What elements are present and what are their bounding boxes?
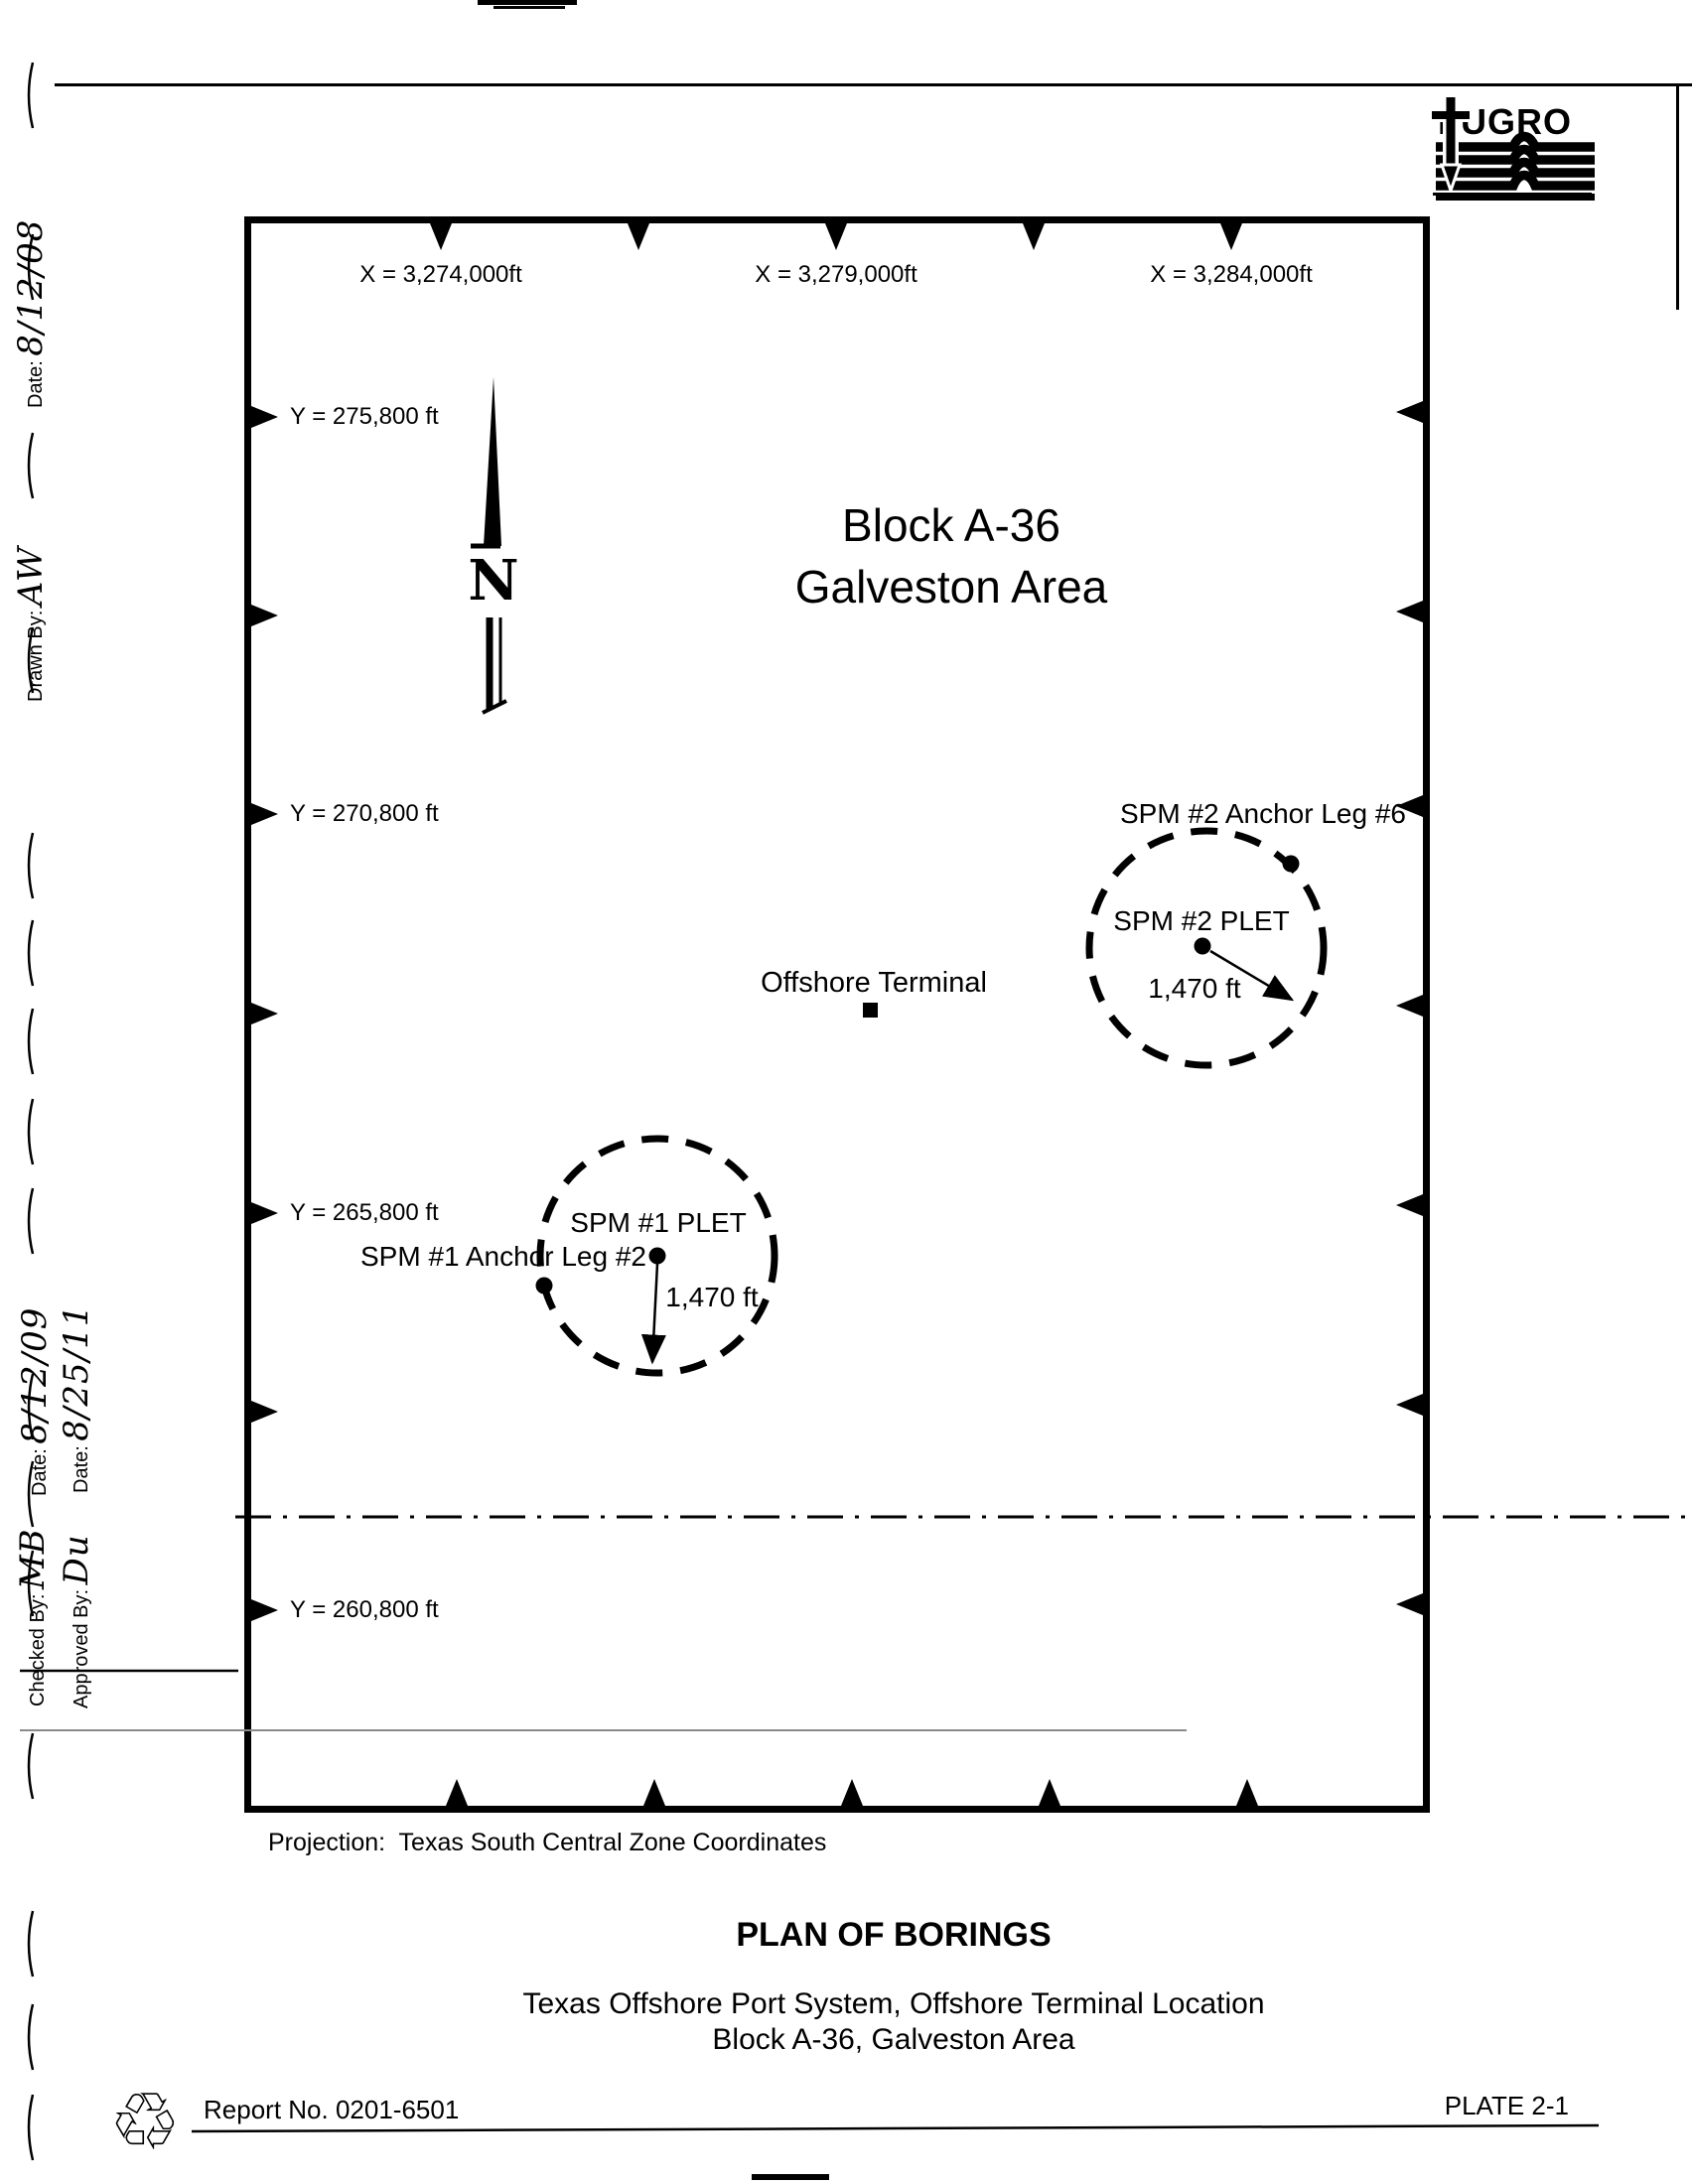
footer-rule bbox=[192, 2125, 1599, 2131]
projection-note: Projection: Texas South Central Zone Coo… bbox=[268, 1829, 826, 1857]
binding-mark bbox=[29, 1551, 33, 1616]
plate-subtitle-line2: Block A-36, Galveston Area bbox=[712, 2023, 1074, 2057]
binding-mark bbox=[29, 1374, 33, 1439]
binding-mark bbox=[29, 2095, 33, 2160]
spm2-plet-dot bbox=[1195, 938, 1211, 955]
bottom-binding-mark bbox=[752, 2174, 829, 2180]
binding-mark bbox=[29, 63, 33, 128]
plan-drawing-overlay bbox=[0, 0, 1692, 2184]
binding-mark bbox=[29, 433, 33, 498]
binding-mark bbox=[29, 2004, 33, 2070]
plate-number: PLATE 2-1 bbox=[1445, 2091, 1569, 2121]
binding-mark bbox=[29, 234, 33, 300]
spm1-anchor-dot bbox=[536, 1278, 553, 1295]
binding-mark bbox=[29, 1461, 33, 1527]
plate-subtitle-line1: Texas Offshore Port System, Offshore Ter… bbox=[522, 1987, 1264, 2021]
binding-mark bbox=[29, 833, 33, 898]
spm1-radius-arrow bbox=[652, 1264, 657, 1362]
recycle-icon: ♲ bbox=[109, 2083, 181, 2162]
binding-mark bbox=[29, 920, 33, 986]
binding-mark bbox=[29, 1911, 33, 1977]
spm2-radius-arrow bbox=[1210, 951, 1292, 1000]
binding-mark bbox=[29, 1188, 33, 1254]
binding-mark bbox=[29, 1099, 33, 1164]
report-number: Report No. 0201-6501 bbox=[204, 2095, 459, 2125]
spm2-anchor-dot bbox=[1283, 856, 1300, 873]
scanned-plate-sheet: FUGRO Date: 8/12/08 Drawn By: AW Date: 8… bbox=[0, 0, 1692, 2184]
binding-mark bbox=[29, 1009, 33, 1074]
spm1-plet-dot bbox=[649, 1248, 666, 1265]
binding-mark bbox=[29, 627, 33, 693]
binding-mark bbox=[29, 1733, 33, 1799]
plate-title: PLAN OF BORINGS bbox=[736, 1916, 1051, 1955]
